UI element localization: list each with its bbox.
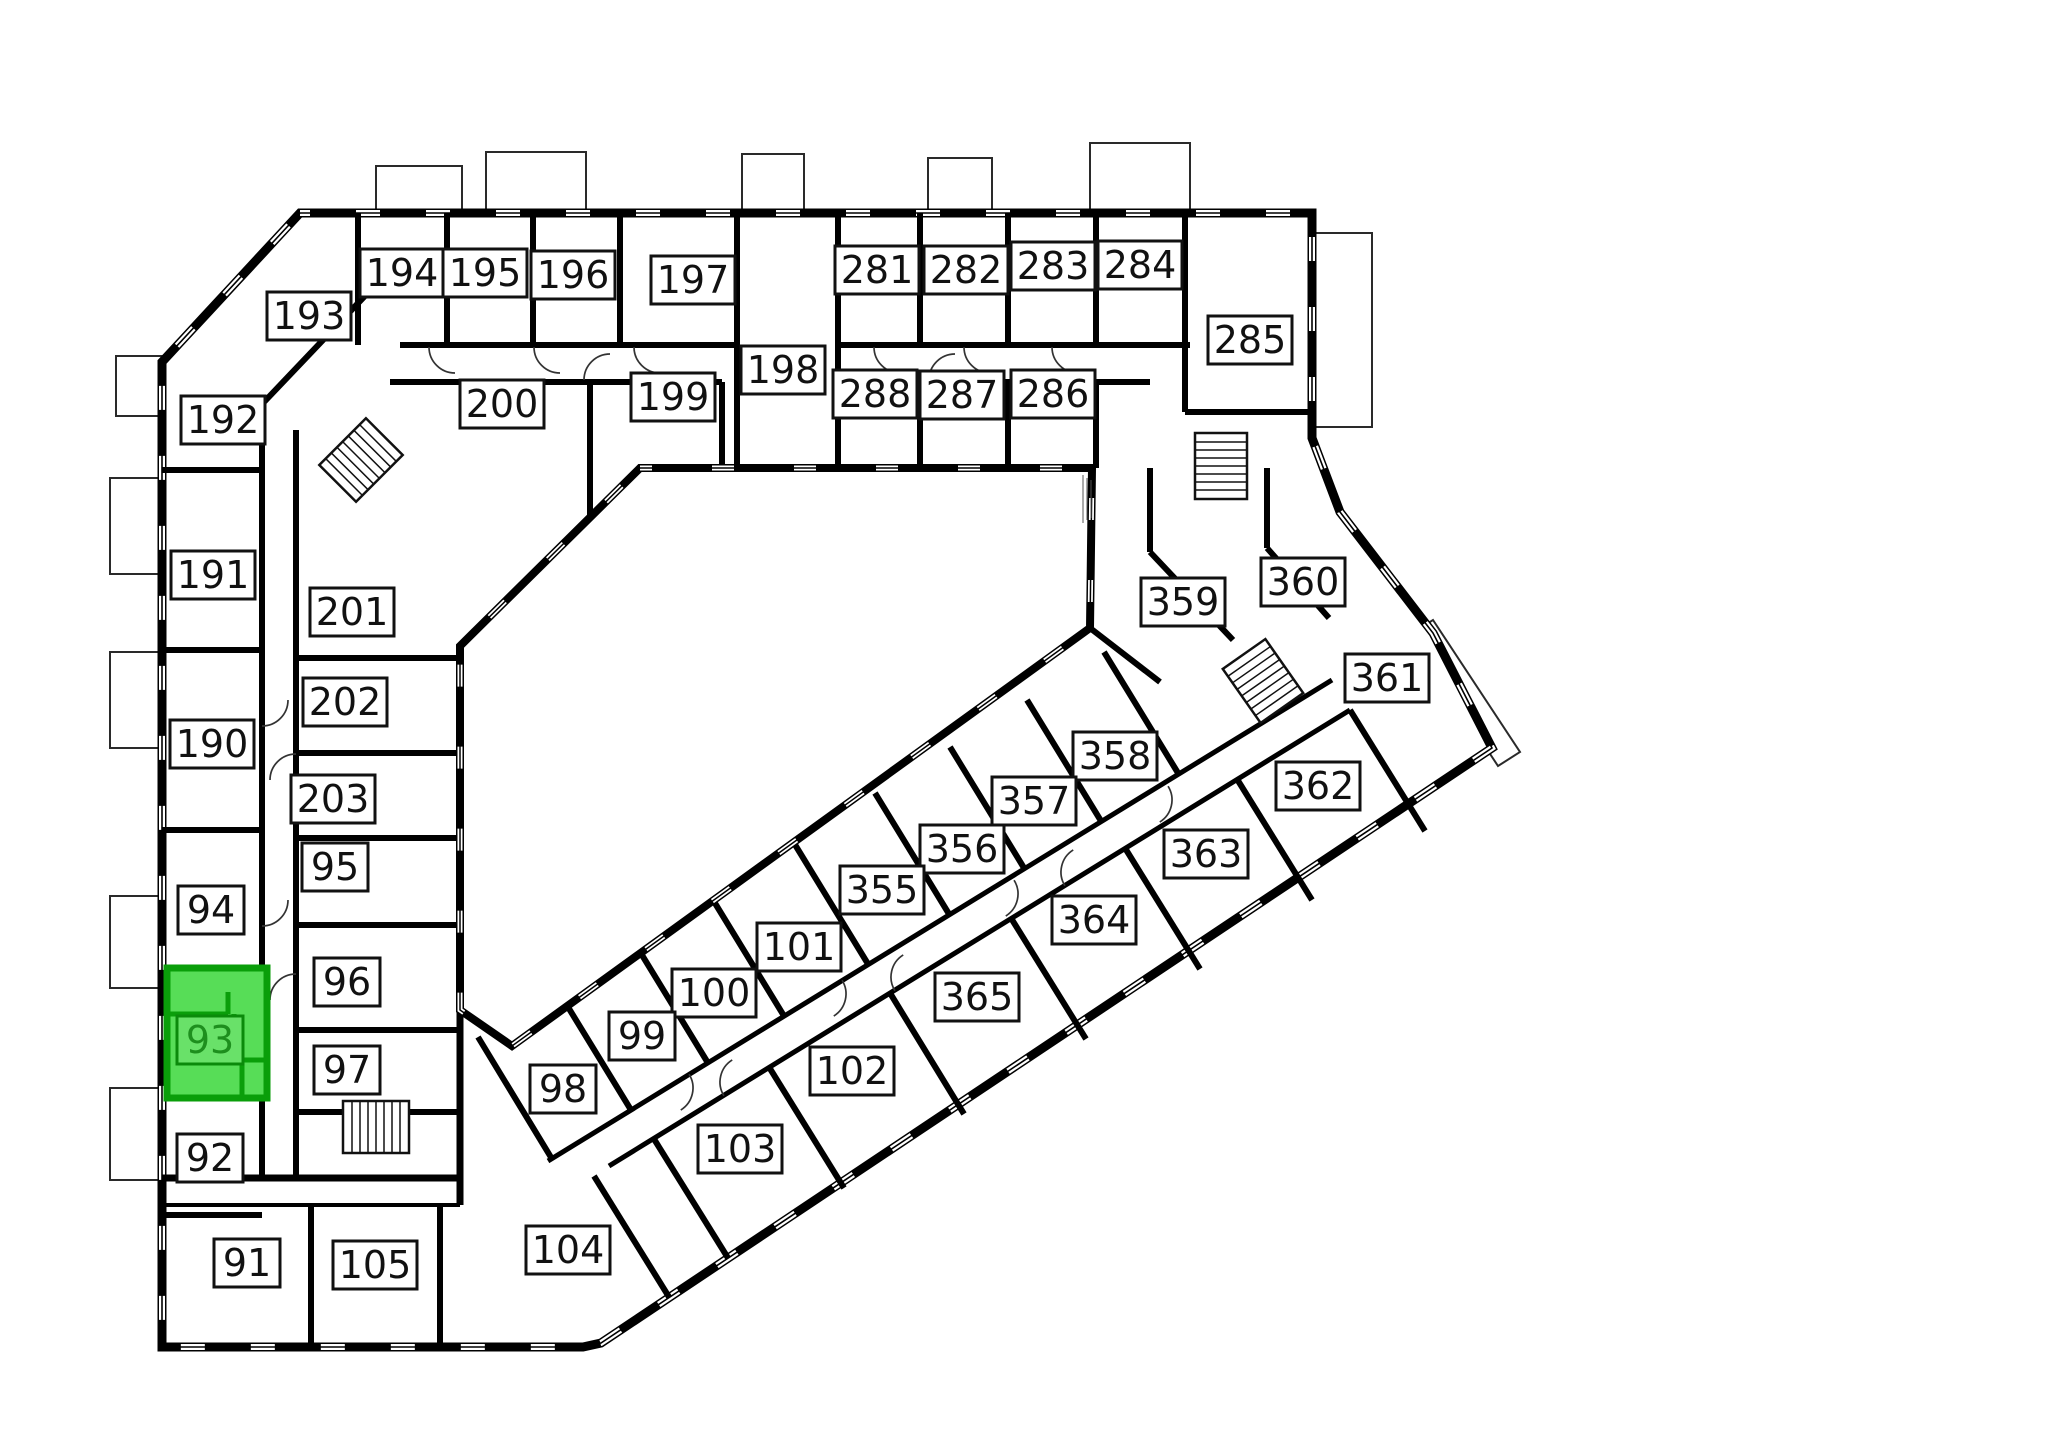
svg-text:287: 287 bbox=[926, 373, 999, 417]
svg-text:94: 94 bbox=[187, 888, 235, 932]
svg-text:102: 102 bbox=[816, 1049, 889, 1093]
room-label-203[interactable]: 203 bbox=[291, 775, 375, 823]
svg-text:97: 97 bbox=[323, 1048, 371, 1092]
svg-text:192: 192 bbox=[187, 398, 260, 442]
room-label-193[interactable]: 193 bbox=[267, 292, 351, 340]
room-label-199[interactable]: 199 bbox=[631, 373, 715, 421]
room-label-364[interactable]: 364 bbox=[1052, 896, 1136, 944]
svg-text:99: 99 bbox=[618, 1014, 666, 1058]
room-label-97[interactable]: 97 bbox=[314, 1046, 380, 1094]
svg-text:282: 282 bbox=[930, 248, 1003, 292]
room-label-355[interactable]: 355 bbox=[840, 866, 924, 914]
room-label-196[interactable]: 196 bbox=[531, 251, 615, 299]
svg-text:365: 365 bbox=[941, 975, 1014, 1019]
room-label-286[interactable]: 286 bbox=[1011, 370, 1095, 418]
svg-text:103: 103 bbox=[704, 1127, 777, 1171]
svg-text:104: 104 bbox=[532, 1228, 605, 1272]
svg-text:364: 364 bbox=[1058, 898, 1131, 942]
svg-text:288: 288 bbox=[839, 372, 912, 416]
svg-text:202: 202 bbox=[309, 680, 382, 724]
svg-text:96: 96 bbox=[323, 960, 371, 1004]
svg-text:93: 93 bbox=[186, 1018, 234, 1062]
svg-text:284: 284 bbox=[1104, 243, 1177, 287]
svg-text:100: 100 bbox=[678, 971, 751, 1015]
room-label-365[interactable]: 365 bbox=[935, 973, 1019, 1021]
room-label-198[interactable]: 198 bbox=[741, 346, 825, 394]
svg-text:283: 283 bbox=[1017, 244, 1090, 288]
room-label-202[interactable]: 202 bbox=[303, 678, 387, 726]
svg-text:361: 361 bbox=[1351, 656, 1424, 700]
floor-plan-canvas: 1921911909493929110510420120220395969719… bbox=[0, 0, 2048, 1447]
room-label-200[interactable]: 200 bbox=[460, 380, 544, 428]
svg-text:358: 358 bbox=[1079, 734, 1152, 778]
svg-text:190: 190 bbox=[176, 722, 249, 766]
svg-text:203: 203 bbox=[297, 777, 370, 821]
svg-text:91: 91 bbox=[223, 1241, 271, 1285]
svg-text:105: 105 bbox=[339, 1243, 412, 1287]
room-label-358[interactable]: 358 bbox=[1073, 732, 1157, 780]
room-label-281[interactable]: 281 bbox=[835, 246, 919, 294]
room-label-283[interactable]: 283 bbox=[1011, 242, 1095, 290]
svg-text:363: 363 bbox=[1170, 832, 1243, 876]
room-label-287[interactable]: 287 bbox=[920, 371, 1004, 419]
svg-text:199: 199 bbox=[637, 375, 710, 419]
room-label-100[interactable]: 100 bbox=[672, 969, 756, 1017]
svg-text:92: 92 bbox=[186, 1136, 234, 1180]
stairs-northeast bbox=[1195, 433, 1247, 499]
room-label-362[interactable]: 362 bbox=[1276, 762, 1360, 810]
svg-text:197: 197 bbox=[657, 258, 730, 302]
room-label-93[interactable]: 93 bbox=[177, 1016, 243, 1064]
svg-text:357: 357 bbox=[998, 779, 1071, 823]
svg-text:362: 362 bbox=[1282, 764, 1355, 808]
room-label-201[interactable]: 201 bbox=[310, 588, 394, 636]
room-label-195[interactable]: 195 bbox=[443, 249, 527, 297]
room-label-359[interactable]: 359 bbox=[1141, 578, 1225, 626]
svg-text:195: 195 bbox=[449, 251, 522, 295]
svg-text:355: 355 bbox=[846, 868, 919, 912]
room-label-285[interactable]: 285 bbox=[1208, 316, 1292, 364]
room-label-99[interactable]: 99 bbox=[609, 1012, 675, 1060]
room-label-190[interactable]: 190 bbox=[170, 720, 254, 768]
room-label-91[interactable]: 91 bbox=[214, 1239, 280, 1287]
svg-text:98: 98 bbox=[539, 1067, 587, 1111]
room-label-194[interactable]: 194 bbox=[360, 249, 444, 297]
room-label-356[interactable]: 356 bbox=[920, 825, 1004, 873]
room-label-357[interactable]: 357 bbox=[992, 777, 1076, 825]
terrace-285 bbox=[1312, 233, 1372, 427]
room-label-96[interactable]: 96 bbox=[314, 958, 380, 1006]
svg-text:198: 198 bbox=[747, 348, 820, 392]
room-label-101[interactable]: 101 bbox=[757, 923, 841, 971]
room-label-191[interactable]: 191 bbox=[171, 551, 255, 599]
room-label-95[interactable]: 95 bbox=[302, 843, 368, 891]
room-label-288[interactable]: 288 bbox=[833, 370, 917, 418]
svg-text:194: 194 bbox=[366, 251, 439, 295]
svg-text:201: 201 bbox=[316, 590, 389, 634]
room-label-192[interactable]: 192 bbox=[181, 396, 265, 444]
room-label-361[interactable]: 361 bbox=[1345, 654, 1429, 702]
svg-text:193: 193 bbox=[273, 294, 346, 338]
room-label-104[interactable]: 104 bbox=[526, 1226, 610, 1274]
room-label-360[interactable]: 360 bbox=[1261, 558, 1345, 606]
svg-text:359: 359 bbox=[1147, 580, 1220, 624]
svg-text:200: 200 bbox=[466, 382, 539, 426]
svg-text:95: 95 bbox=[311, 845, 359, 889]
svg-text:285: 285 bbox=[1214, 318, 1287, 362]
room-label-363[interactable]: 363 bbox=[1164, 830, 1248, 878]
room-label-92[interactable]: 92 bbox=[177, 1134, 243, 1182]
room-label-98[interactable]: 98 bbox=[530, 1065, 596, 1113]
room-label-103[interactable]: 103 bbox=[698, 1125, 782, 1173]
svg-text:360: 360 bbox=[1267, 560, 1340, 604]
room-label-282[interactable]: 282 bbox=[924, 246, 1008, 294]
svg-text:281: 281 bbox=[841, 248, 914, 292]
svg-text:356: 356 bbox=[926, 827, 999, 871]
stairs-southwest bbox=[343, 1101, 409, 1153]
room-label-197[interactable]: 197 bbox=[651, 256, 735, 304]
room-label-94[interactable]: 94 bbox=[178, 886, 244, 934]
svg-text:191: 191 bbox=[177, 553, 250, 597]
room-label-284[interactable]: 284 bbox=[1098, 241, 1182, 289]
svg-text:196: 196 bbox=[537, 253, 610, 297]
room-label-105[interactable]: 105 bbox=[333, 1241, 417, 1289]
svg-text:286: 286 bbox=[1017, 372, 1090, 416]
floor-plan: 1921911909493929110510420120220395969719… bbox=[0, 0, 2048, 1447]
room-label-102[interactable]: 102 bbox=[810, 1047, 894, 1095]
svg-text:101: 101 bbox=[763, 925, 836, 969]
